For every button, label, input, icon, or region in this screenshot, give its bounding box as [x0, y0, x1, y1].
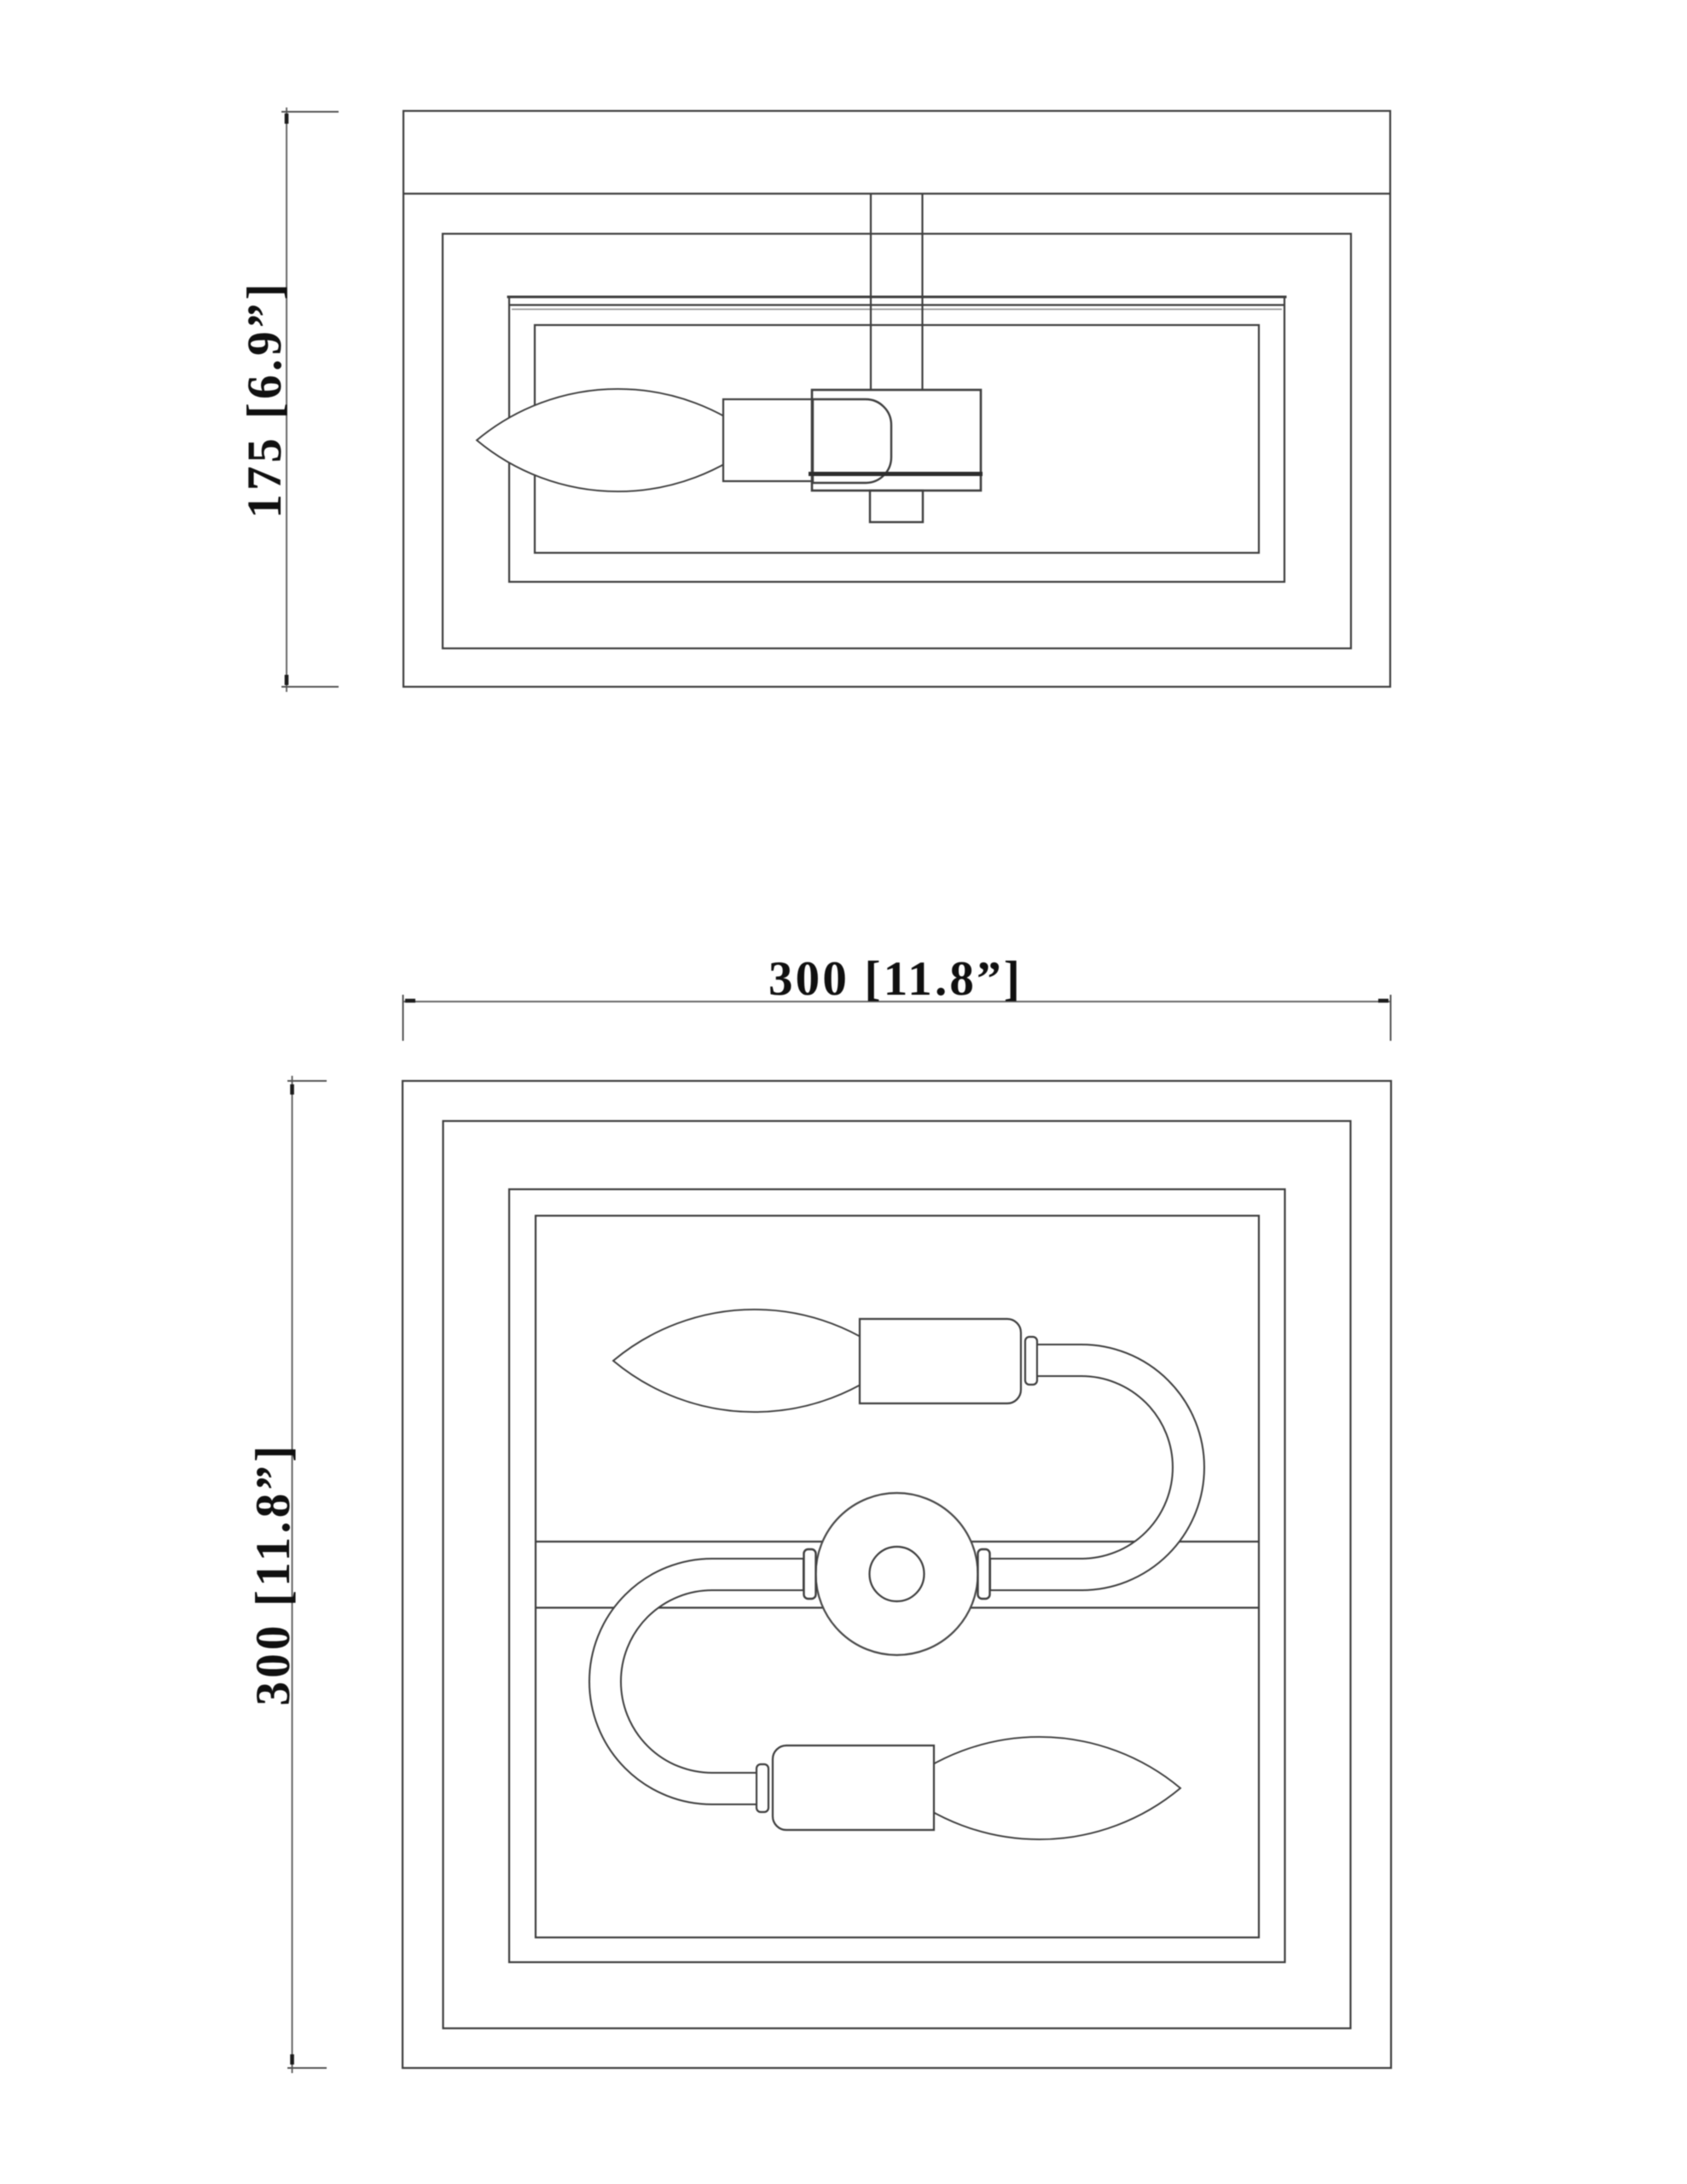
svg-text:300 [11.8”]: 300 [11.8”] — [768, 952, 1023, 1006]
svg-text:175 [6.9”]: 175 [6.9”] — [238, 280, 292, 518]
svg-text:300 [11.8”]: 300 [11.8”] — [246, 1442, 300, 1705]
